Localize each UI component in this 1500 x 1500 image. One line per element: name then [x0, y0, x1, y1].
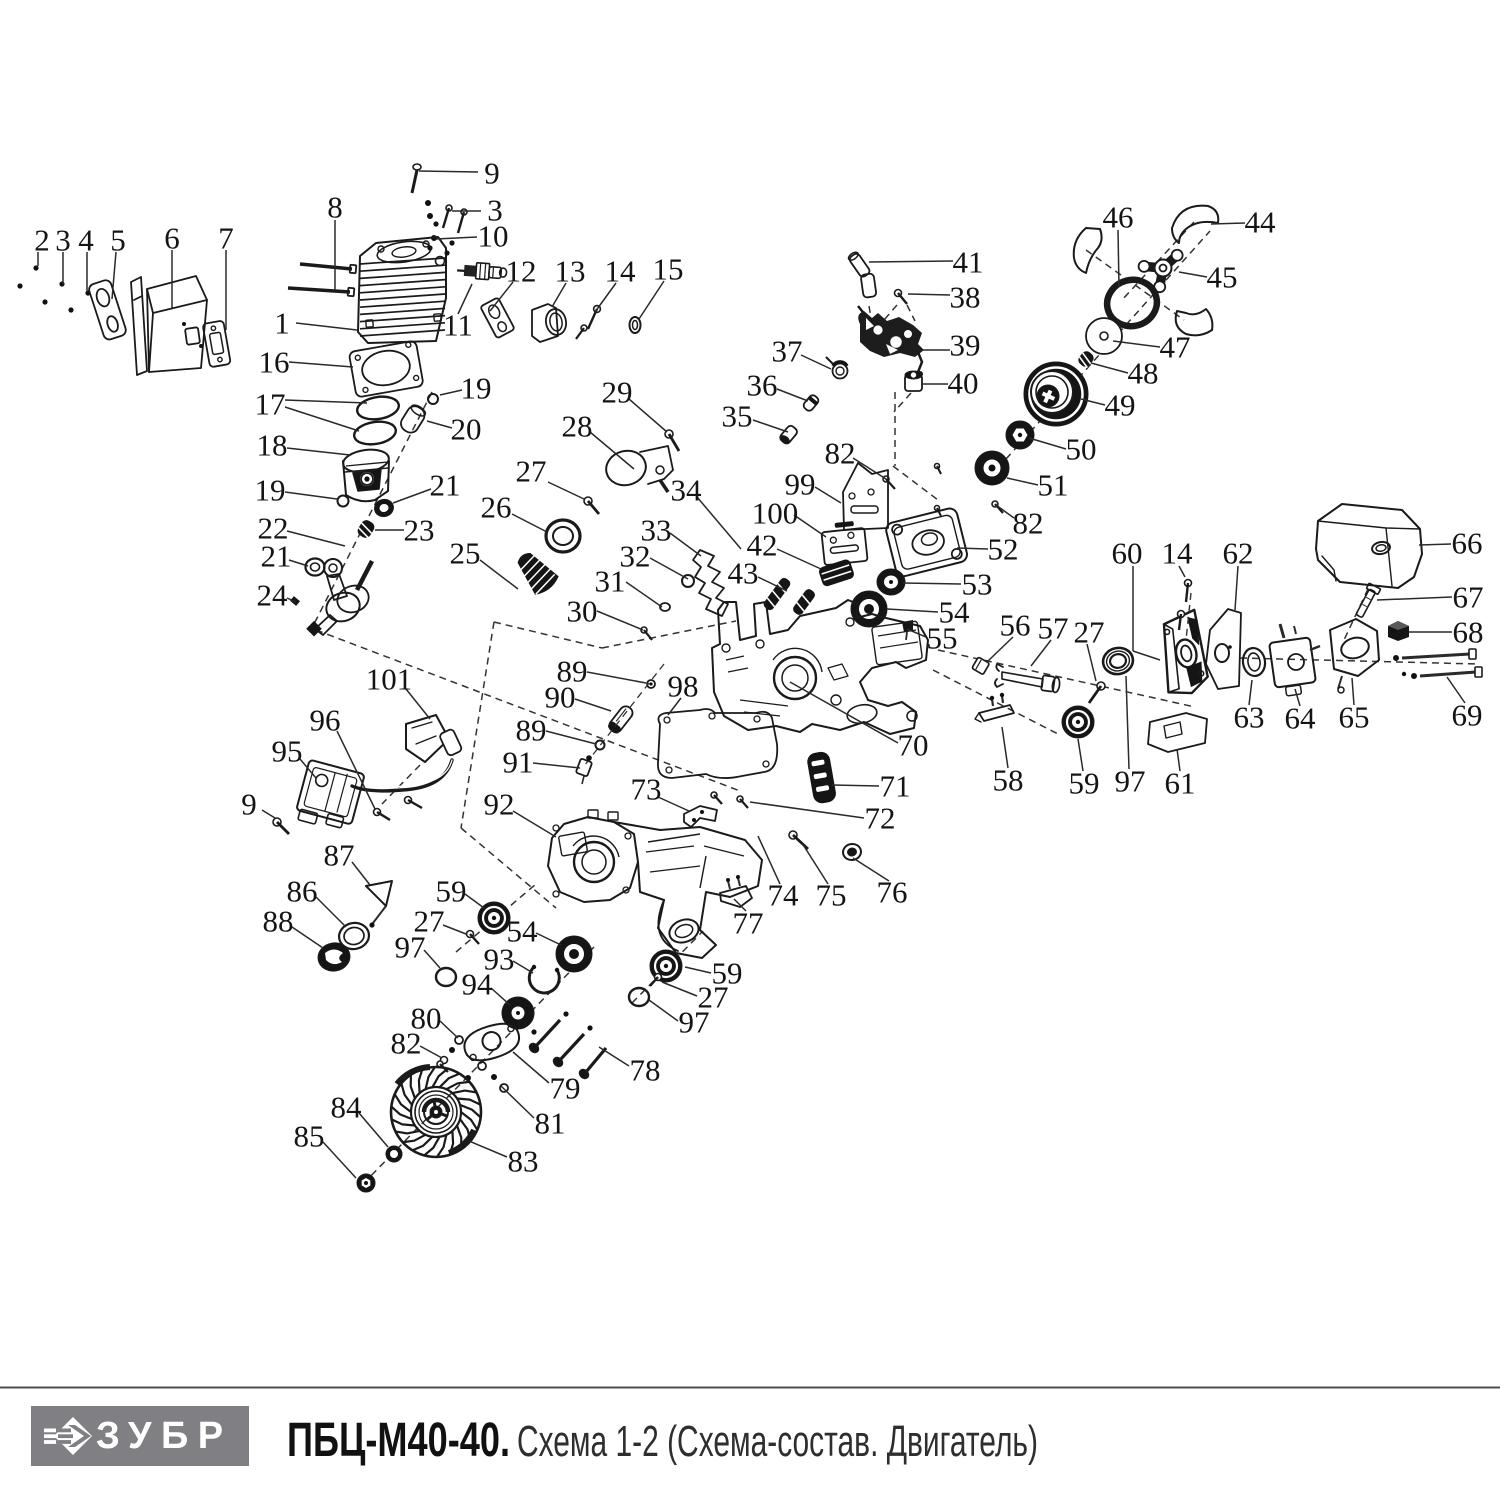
- svg-text:39: 39: [950, 328, 981, 363]
- svg-text:101: 101: [366, 662, 413, 697]
- svg-text:28: 28: [562, 409, 593, 444]
- svg-text:21: 21: [430, 468, 461, 503]
- svg-text:69: 69: [1452, 698, 1483, 733]
- svg-text:78: 78: [630, 1053, 661, 1088]
- svg-text:47: 47: [1160, 330, 1191, 365]
- svg-text:50: 50: [1066, 432, 1097, 467]
- svg-text:9: 9: [241, 787, 257, 822]
- svg-text:58: 58: [993, 763, 1024, 798]
- svg-text:2: 2: [34, 223, 50, 258]
- svg-text:48: 48: [1128, 356, 1159, 391]
- svg-text:66: 66: [1452, 526, 1483, 561]
- svg-text:9: 9: [484, 156, 500, 191]
- svg-text:100: 100: [752, 496, 799, 531]
- svg-text:83: 83: [508, 1144, 539, 1179]
- svg-text:30: 30: [567, 594, 598, 629]
- svg-text:19: 19: [461, 371, 492, 406]
- svg-text:18: 18: [257, 428, 288, 463]
- svg-text:5: 5: [110, 223, 126, 258]
- svg-text:10: 10: [478, 219, 509, 254]
- svg-text:96: 96: [310, 703, 341, 738]
- svg-text:89: 89: [516, 713, 547, 748]
- svg-text:16: 16: [259, 345, 290, 380]
- svg-text:63: 63: [1234, 700, 1265, 735]
- svg-text:17: 17: [255, 387, 286, 422]
- svg-text:51: 51: [1038, 468, 1069, 503]
- svg-text:71: 71: [880, 769, 911, 804]
- svg-text:70: 70: [898, 728, 929, 763]
- svg-text:13: 13: [555, 254, 586, 289]
- svg-text:67: 67: [1453, 580, 1484, 615]
- svg-text:98: 98: [668, 669, 699, 704]
- svg-text:85: 85: [294, 1119, 325, 1154]
- svg-text:15: 15: [653, 252, 684, 287]
- svg-text:64: 64: [1285, 701, 1317, 736]
- svg-text:11: 11: [443, 308, 473, 343]
- svg-text:97: 97: [395, 930, 426, 965]
- svg-text:ЗУБР: ЗУБР: [96, 1415, 233, 1457]
- svg-text:73: 73: [631, 772, 662, 807]
- svg-text:46: 46: [1103, 200, 1134, 235]
- svg-text:27: 27: [516, 454, 547, 489]
- svg-text:60: 60: [1112, 536, 1143, 571]
- svg-text:76: 76: [877, 875, 908, 910]
- svg-text:59: 59: [1069, 766, 1100, 801]
- svg-text:82: 82: [391, 1026, 422, 1061]
- svg-text:14: 14: [1162, 536, 1194, 571]
- svg-text:38: 38: [950, 280, 981, 315]
- svg-text:91: 91: [503, 745, 534, 780]
- svg-text:57: 57: [1038, 611, 1069, 646]
- svg-text:35: 35: [722, 399, 753, 434]
- svg-text:31: 31: [595, 564, 626, 599]
- svg-text:84: 84: [331, 1090, 363, 1125]
- svg-text:24: 24: [257, 578, 289, 613]
- svg-text:97: 97: [1115, 764, 1146, 799]
- svg-text:61: 61: [1165, 766, 1196, 801]
- svg-text:36: 36: [747, 368, 778, 403]
- svg-text:43: 43: [728, 556, 759, 591]
- svg-text:29: 29: [602, 375, 633, 410]
- svg-text:26: 26: [481, 490, 512, 525]
- svg-text:95: 95: [272, 734, 303, 769]
- svg-text:90: 90: [545, 680, 576, 715]
- svg-text:68: 68: [1453, 615, 1484, 650]
- svg-text:ПБЦ-М40-40.: ПБЦ-М40-40.: [287, 1414, 510, 1467]
- svg-text:7: 7: [218, 221, 234, 256]
- svg-text:45: 45: [1207, 260, 1238, 295]
- svg-text:87: 87: [324, 838, 355, 873]
- svg-text:8: 8: [327, 190, 343, 225]
- svg-text:3: 3: [55, 223, 71, 258]
- svg-text:4: 4: [78, 223, 94, 258]
- svg-text:23: 23: [404, 513, 435, 548]
- svg-text:14: 14: [605, 254, 637, 289]
- svg-text:72: 72: [865, 801, 896, 836]
- svg-text:12: 12: [506, 254, 537, 289]
- svg-text:34: 34: [671, 473, 703, 508]
- svg-text:44: 44: [1245, 205, 1277, 240]
- svg-text:81: 81: [535, 1106, 566, 1141]
- svg-text:49: 49: [1105, 388, 1136, 423]
- svg-text:37: 37: [772, 334, 803, 369]
- svg-text:62: 62: [1223, 536, 1254, 571]
- svg-text:52: 52: [988, 532, 1019, 567]
- svg-text:82: 82: [825, 436, 856, 471]
- svg-text:40: 40: [948, 366, 979, 401]
- svg-text:92: 92: [484, 787, 515, 822]
- svg-text:94: 94: [462, 967, 494, 1002]
- svg-text:55: 55: [927, 621, 958, 656]
- svg-text:74: 74: [768, 878, 800, 913]
- svg-text:Схема 1-2 (Схема-состав. Двига: Схема 1-2 (Схема-состав. Двигатель): [517, 1417, 1038, 1466]
- svg-text:65: 65: [1339, 700, 1370, 735]
- svg-text:79: 79: [550, 1071, 581, 1106]
- svg-text:1: 1: [274, 306, 290, 341]
- svg-text:88: 88: [263, 904, 294, 939]
- svg-text:20: 20: [451, 412, 482, 447]
- svg-text:6: 6: [164, 221, 180, 256]
- svg-text:41: 41: [953, 245, 984, 280]
- svg-text:21: 21: [261, 539, 292, 574]
- svg-text:75: 75: [816, 878, 847, 913]
- svg-text:25: 25: [450, 536, 481, 571]
- svg-text:77: 77: [733, 906, 764, 941]
- svg-text:19: 19: [255, 473, 286, 508]
- svg-text:56: 56: [1000, 608, 1031, 643]
- svg-text:97: 97: [679, 1005, 710, 1040]
- svg-text:27: 27: [1074, 615, 1105, 650]
